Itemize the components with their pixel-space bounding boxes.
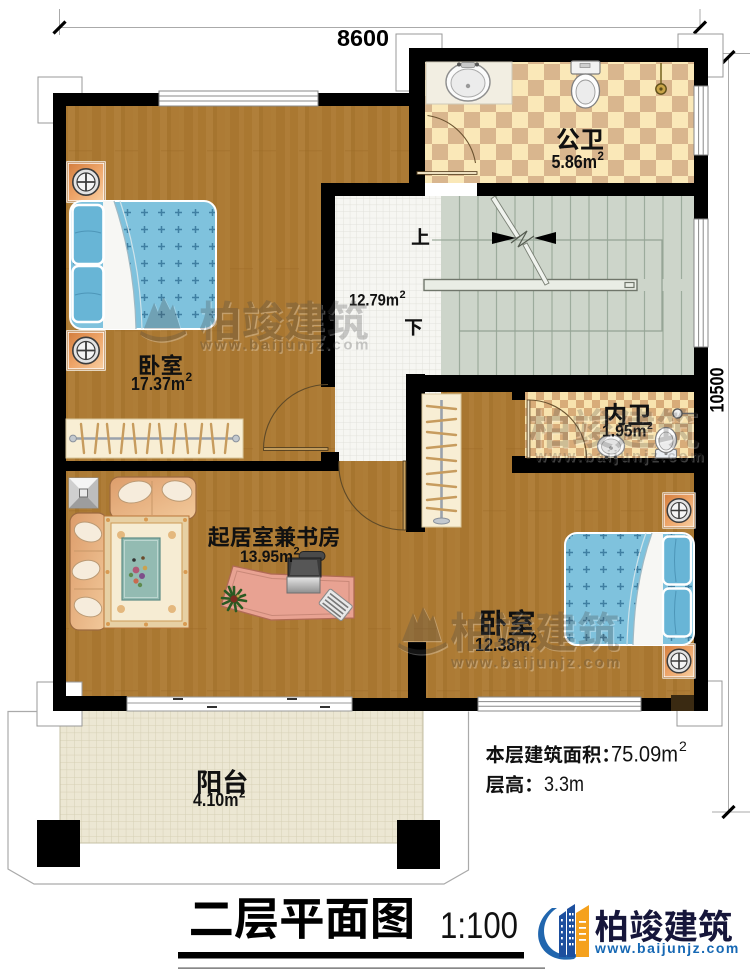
svg-text:3.3m: 3.3m [544, 772, 584, 796]
svg-text:www.baijunjz.com: www.baijunjz.com [534, 448, 706, 465]
svg-text:4.10m: 4.10m [193, 790, 239, 810]
svg-text:8600: 8600 [337, 25, 389, 51]
svg-text:2: 2 [239, 789, 245, 801]
svg-text:17.37m: 17.37m [131, 373, 185, 394]
svg-text:13.95m: 13.95m [240, 547, 293, 566]
svg-text:www.baijunjz.com: www.baijunjz.com [450, 654, 622, 671]
svg-text:2: 2 [186, 370, 193, 384]
svg-text:2: 2 [531, 634, 537, 646]
svg-text:5.86m: 5.86m [552, 152, 598, 172]
svg-text:2: 2 [598, 151, 604, 163]
svg-text:2: 2 [679, 738, 687, 754]
svg-text:75.09m: 75.09m [611, 742, 678, 767]
svg-text:2: 2 [400, 289, 406, 301]
svg-text:10500: 10500 [708, 368, 729, 413]
svg-text:www.baijunjz.com: www.baijunjz.com [594, 940, 740, 956]
svg-text:2: 2 [294, 546, 300, 558]
svg-text:1:100: 1:100 [440, 905, 518, 946]
svg-text:www.baijunjz.com: www.baijunjz.com [199, 337, 371, 354]
